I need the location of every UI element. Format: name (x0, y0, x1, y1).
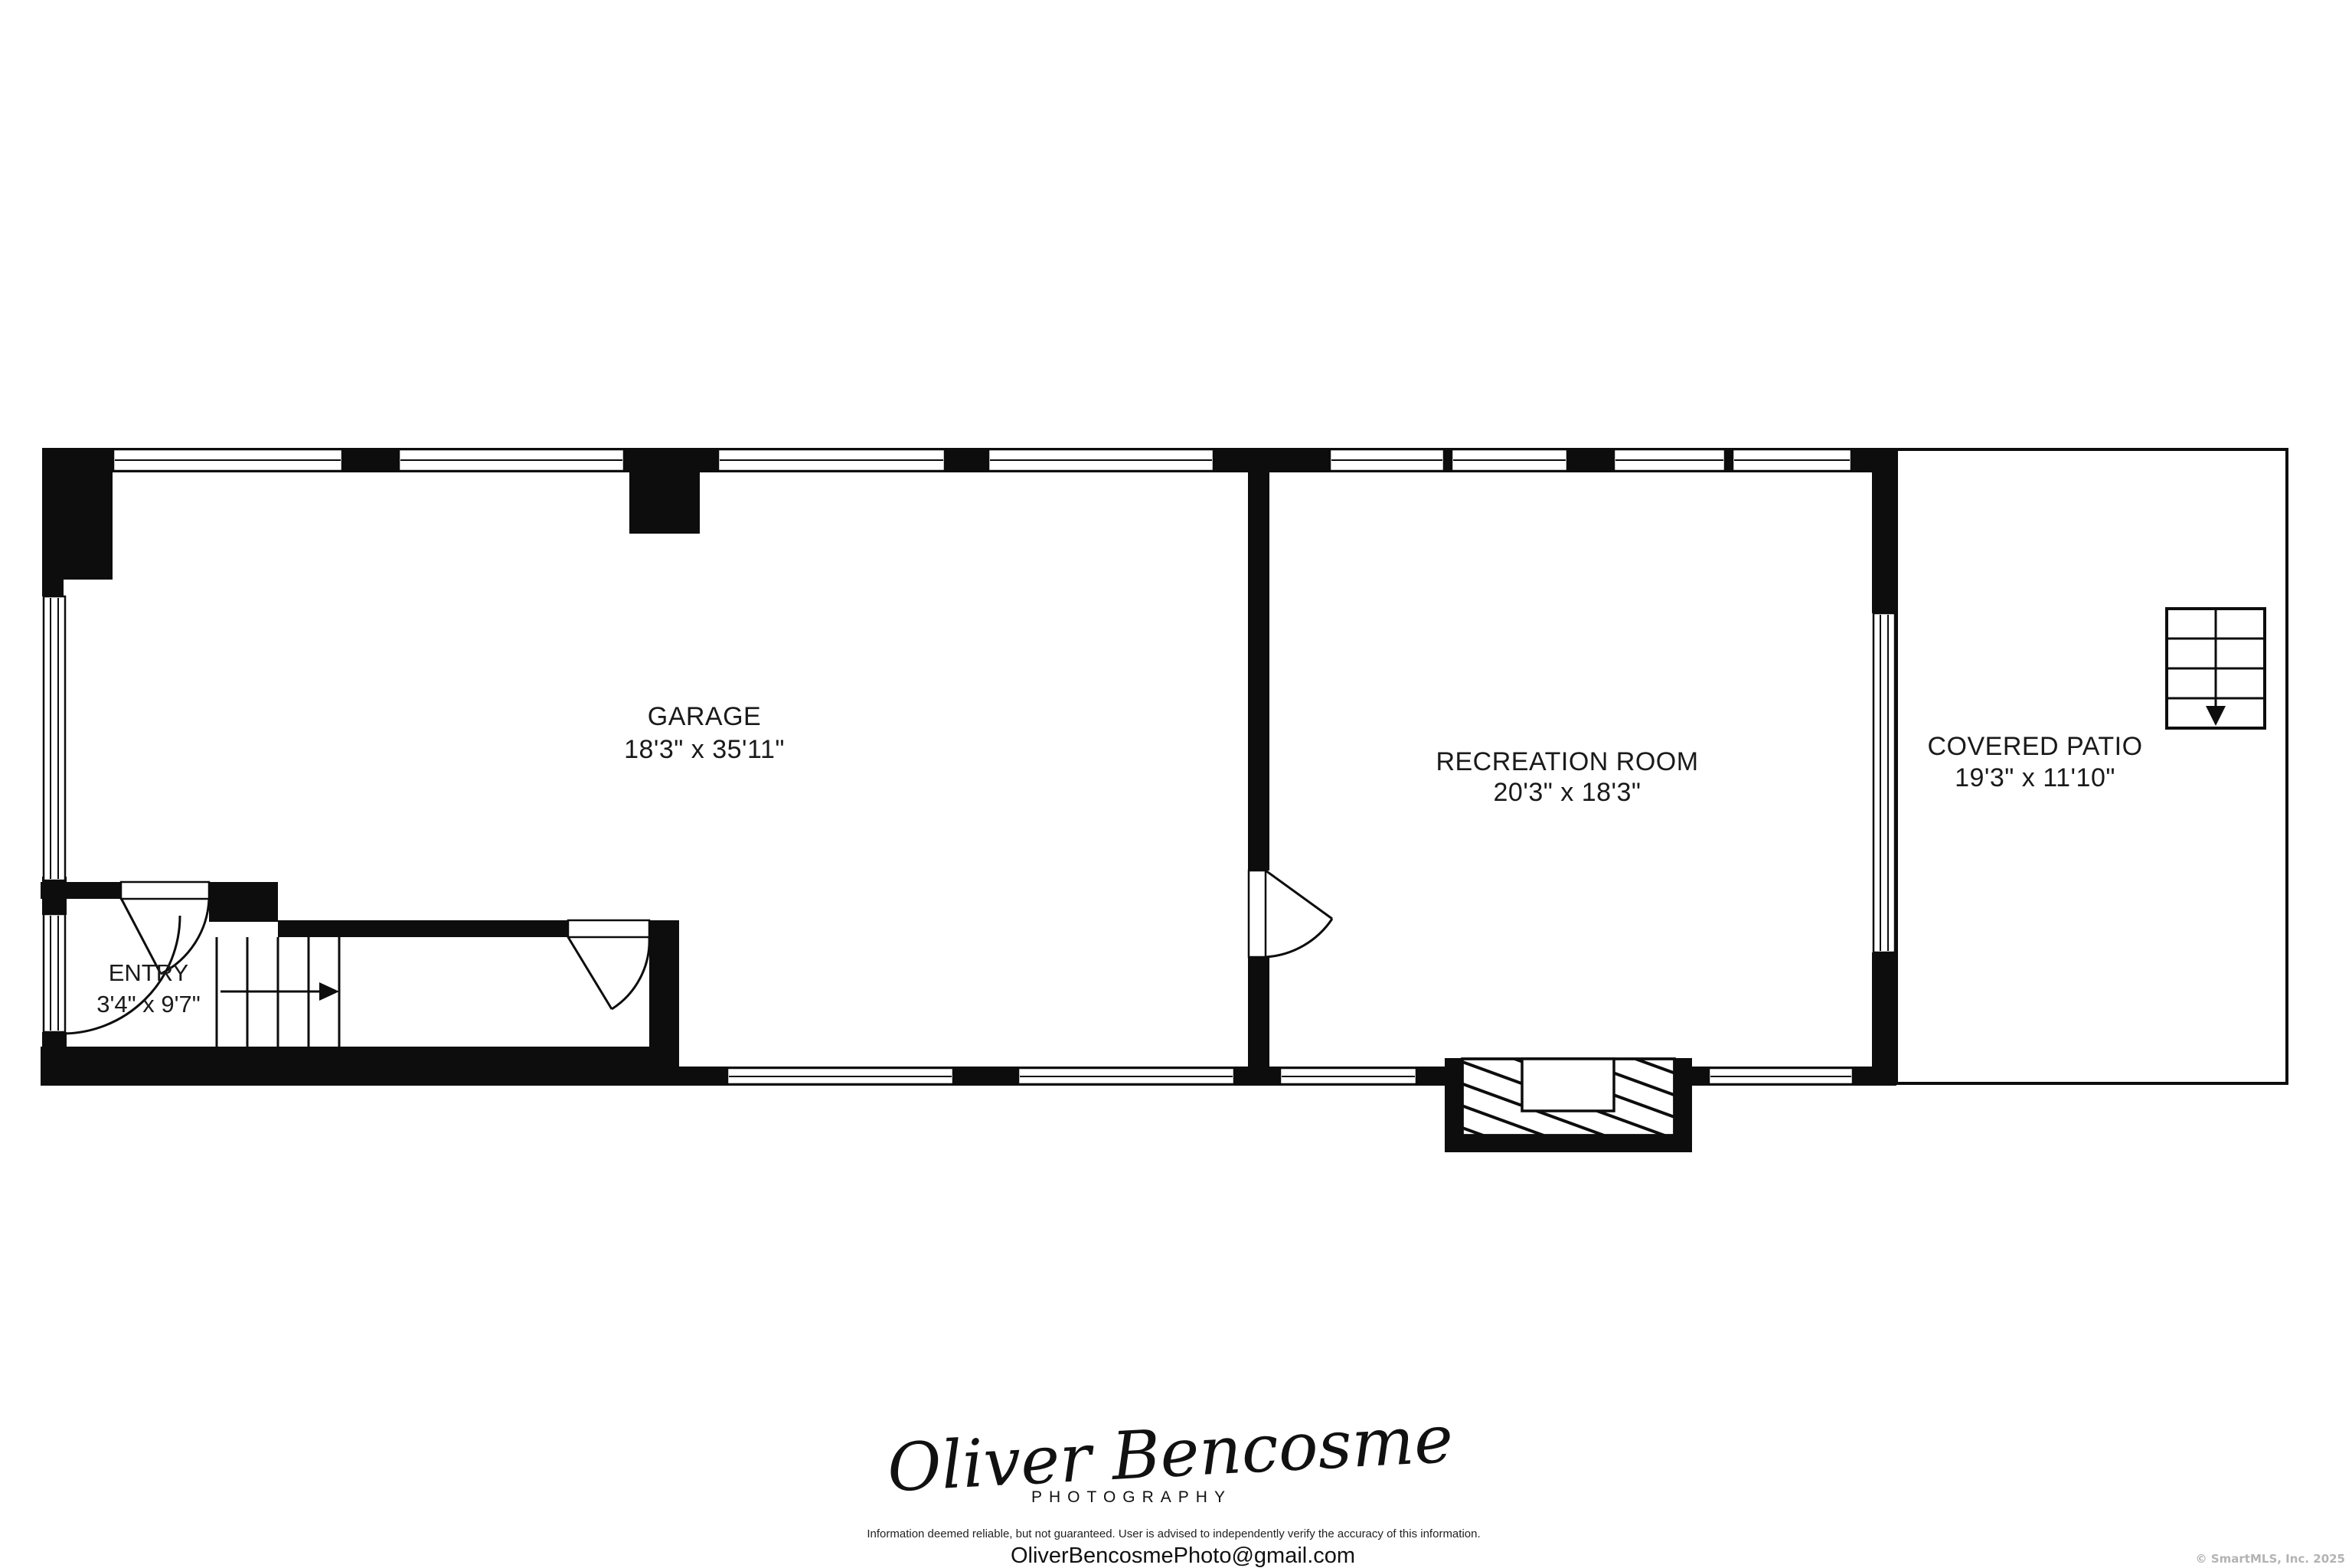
entry-dims: 3'4" x 9'7" (96, 991, 201, 1018)
wall-entry-corner-block (209, 882, 278, 922)
corridor-door-jamb (568, 920, 649, 937)
wall-divider-lower (1248, 957, 1269, 1068)
entry-stairs (217, 937, 339, 1047)
floor-plan-page: GARAGE 18'3" x 35'11" RECREATION ROOM 20… (0, 0, 2352, 1568)
garage-dims: 18'3" x 35'11" (624, 735, 785, 764)
garage-label: GARAGE (648, 702, 761, 731)
fireplace (1445, 1058, 1692, 1152)
wall-right-lower (1872, 952, 1896, 1086)
wall-divider-upper (1248, 448, 1269, 871)
footer: Oliver Bencosme PHOTOGRAPHY Information … (867, 1401, 2345, 1568)
wall-pier-garage (629, 448, 700, 534)
corridor-door-swing (612, 937, 649, 1009)
contact-email: OliverBencosmePhoto@gmail.com (1011, 1543, 1355, 1568)
signature-subtitle: PHOTOGRAPHY (1031, 1488, 1232, 1506)
rec-room-label: RECREATION ROOM (1436, 747, 1698, 776)
rec-room-dims: 20'3" x 18'3" (1494, 778, 1641, 807)
wall-bottom-entry-section (41, 1047, 679, 1086)
stairs-arrow-icon (319, 982, 339, 1001)
fireplace-firebox (1522, 1059, 1614, 1111)
patio-dims: 19'3" x 11'10" (1955, 763, 2115, 792)
patio-stairs (2167, 609, 2265, 728)
copyright-text: © SmartMLS, Inc. 2025 (2196, 1552, 2345, 1566)
floor-plan-drawing: GARAGE 18'3" x 35'11" RECREATION ROOM 20… (0, 0, 2352, 1568)
entry-label: ENTRY (109, 959, 189, 986)
rec-room-door-swing (1266, 919, 1332, 957)
room-labels: GARAGE 18'3" x 35'11" RECREATION ROOM 20… (96, 702, 2142, 1018)
windows-side-walls (44, 596, 1895, 1032)
wall-pier-notch (42, 580, 64, 596)
patio-label: COVERED PATIO (1927, 732, 2142, 761)
wall-pier-topleft (42, 448, 113, 580)
entry-top-door-jamb (121, 882, 209, 899)
wall-corridor-top (278, 920, 568, 937)
wall-corridor-right (649, 920, 679, 1086)
wall-right-upper (1872, 448, 1896, 613)
disclaimer-text: Information deemed reliable, but not gua… (867, 1527, 1480, 1540)
rec-room-door-leaf (1249, 871, 1266, 957)
